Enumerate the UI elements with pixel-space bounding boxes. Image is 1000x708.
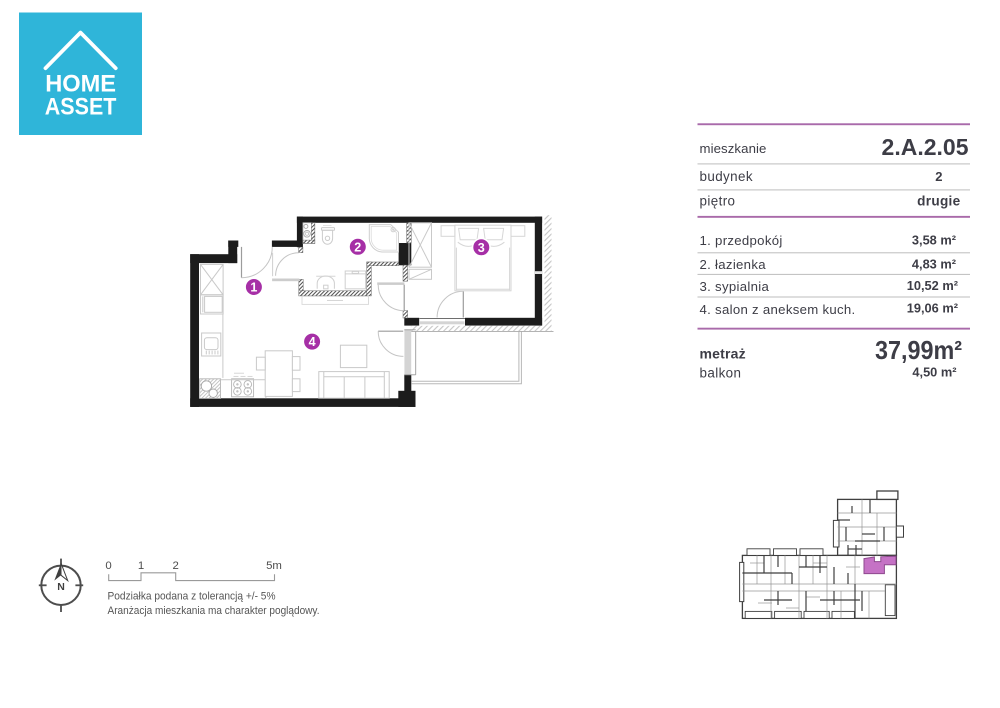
svg-text:mieszkanie: mieszkanie bbox=[700, 141, 767, 156]
svg-text:metraż: metraż bbox=[700, 346, 746, 362]
svg-text:balkon: balkon bbox=[700, 366, 742, 381]
svg-text:4: 4 bbox=[309, 335, 316, 349]
svg-text:2: 2 bbox=[173, 560, 179, 572]
svg-text:2.A.2.05: 2.A.2.05 bbox=[882, 134, 969, 160]
svg-text:2: 2 bbox=[354, 240, 361, 254]
svg-text:piętro: piętro bbox=[700, 194, 736, 209]
svg-text:ASSET: ASSET bbox=[45, 94, 117, 121]
svg-text:4,50 m²: 4,50 m² bbox=[912, 365, 956, 380]
svg-text:4. salon z aneksem kuch.: 4. salon z aneksem kuch. bbox=[700, 302, 856, 317]
svg-text:N: N bbox=[57, 581, 65, 593]
svg-text:drugie: drugie bbox=[917, 194, 960, 209]
svg-text:4,83 m²: 4,83 m² bbox=[912, 257, 956, 272]
svg-text:2: 2 bbox=[935, 169, 942, 184]
svg-text:3,58 m²: 3,58 m² bbox=[912, 233, 956, 248]
svg-text:5m: 5m bbox=[266, 560, 282, 572]
svg-text:19,06 m²: 19,06 m² bbox=[907, 301, 958, 316]
svg-text:3: 3 bbox=[478, 241, 485, 255]
svg-text:budynek: budynek bbox=[700, 169, 753, 184]
svg-text:1: 1 bbox=[250, 281, 257, 295]
svg-text:1. przedpokój: 1. przedpokój bbox=[700, 233, 783, 248]
svg-text:1: 1 bbox=[138, 560, 144, 572]
svg-text:Aranżacja mieszkania ma charak: Aranżacja mieszkania ma charakter pogląd… bbox=[108, 605, 320, 617]
svg-text:Podziałka podana z tolerancją: Podziałka podana z tolerancją +/- 5% bbox=[108, 590, 276, 602]
svg-text:10,52 m²: 10,52 m² bbox=[907, 278, 958, 293]
svg-text:37,99m²: 37,99m² bbox=[875, 335, 962, 365]
svg-text:0: 0 bbox=[105, 560, 111, 572]
svg-text:2. łazienka: 2. łazienka bbox=[700, 257, 767, 272]
svg-text:3. sypialnia: 3. sypialnia bbox=[700, 279, 770, 294]
